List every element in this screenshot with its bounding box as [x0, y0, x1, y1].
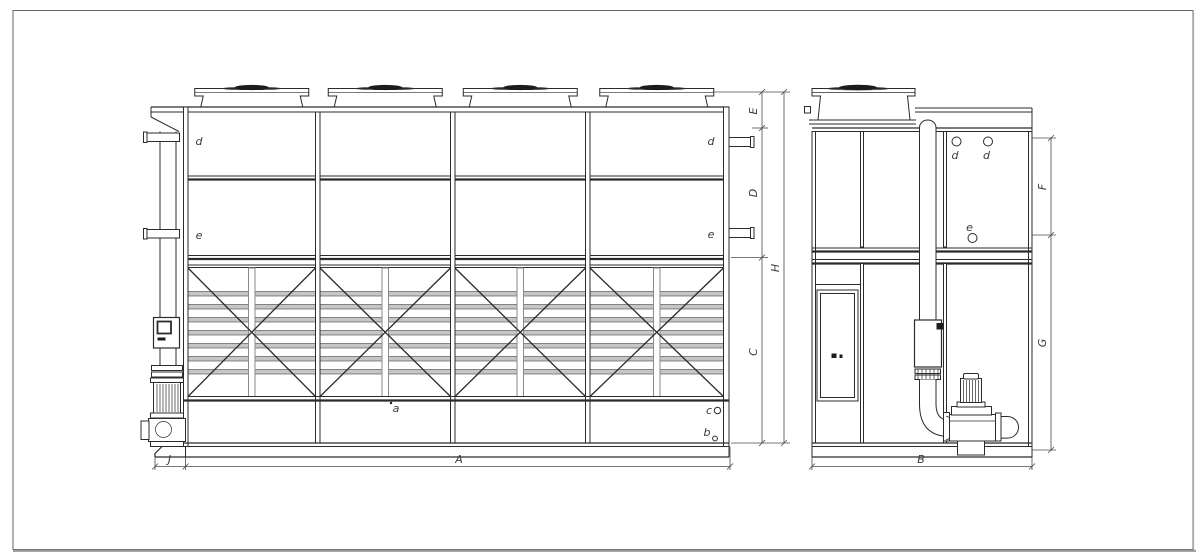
- drain-b-circle: [713, 436, 718, 441]
- drawing-sheet: d d e e a c b: [0, 0, 1200, 559]
- access-door: [816, 285, 861, 402]
- side-label-e: e: [966, 221, 973, 234]
- fan-cowl-1: [195, 85, 309, 107]
- sheet-border: [13, 11, 1196, 551]
- fan-cowl-4: [600, 85, 714, 107]
- dim-E: E: [747, 107, 760, 114]
- fan-cowl-2: [328, 85, 442, 107]
- label-d-left: d: [196, 135, 204, 148]
- dim-F: F: [1036, 183, 1049, 190]
- outlet-stub-e: [729, 228, 754, 239]
- label-c: c: [706, 404, 712, 417]
- dim-H: H: [769, 264, 782, 272]
- dim-C: C: [747, 348, 760, 356]
- connection-d2-circle: [984, 137, 993, 146]
- drain-c-circle: [714, 407, 720, 413]
- connection-e-circle: [968, 234, 977, 243]
- side-fan-cowl: [805, 85, 917, 124]
- side-view: d d e F G B: [805, 85, 1057, 470]
- label-e-right: e: [708, 228, 715, 241]
- label-b: b: [704, 426, 711, 439]
- pump-front: [141, 366, 186, 447]
- casing-bands: [184, 176, 730, 268]
- dim-G: G: [1036, 339, 1049, 348]
- fan-cowl-3: [463, 85, 577, 107]
- basin: [155, 397, 729, 447]
- side-label-d1: d: [952, 149, 960, 162]
- base-plinth: [155, 447, 729, 458]
- label-d-right: d: [708, 135, 716, 148]
- control-box: [154, 318, 180, 349]
- connection-d1-circle: [952, 137, 961, 146]
- front-dim-lines: [152, 89, 790, 470]
- cooling-tower-technical-drawing: d d e e a c b: [0, 0, 1200, 559]
- label-e-left: e: [196, 229, 203, 242]
- label-a: a: [393, 402, 400, 415]
- dim-B: B: [917, 453, 925, 466]
- side-label-d2: d: [983, 149, 991, 162]
- dim-A: A: [454, 453, 463, 466]
- dim-J: J: [166, 453, 171, 466]
- front-view: d d e e a c b: [141, 85, 790, 470]
- louver-slats: [188, 292, 724, 375]
- dim-D: D: [747, 189, 760, 197]
- outlet-stub-d: [729, 137, 754, 148]
- door-handle-marks: [832, 354, 837, 359]
- top-deck: [151, 107, 729, 112]
